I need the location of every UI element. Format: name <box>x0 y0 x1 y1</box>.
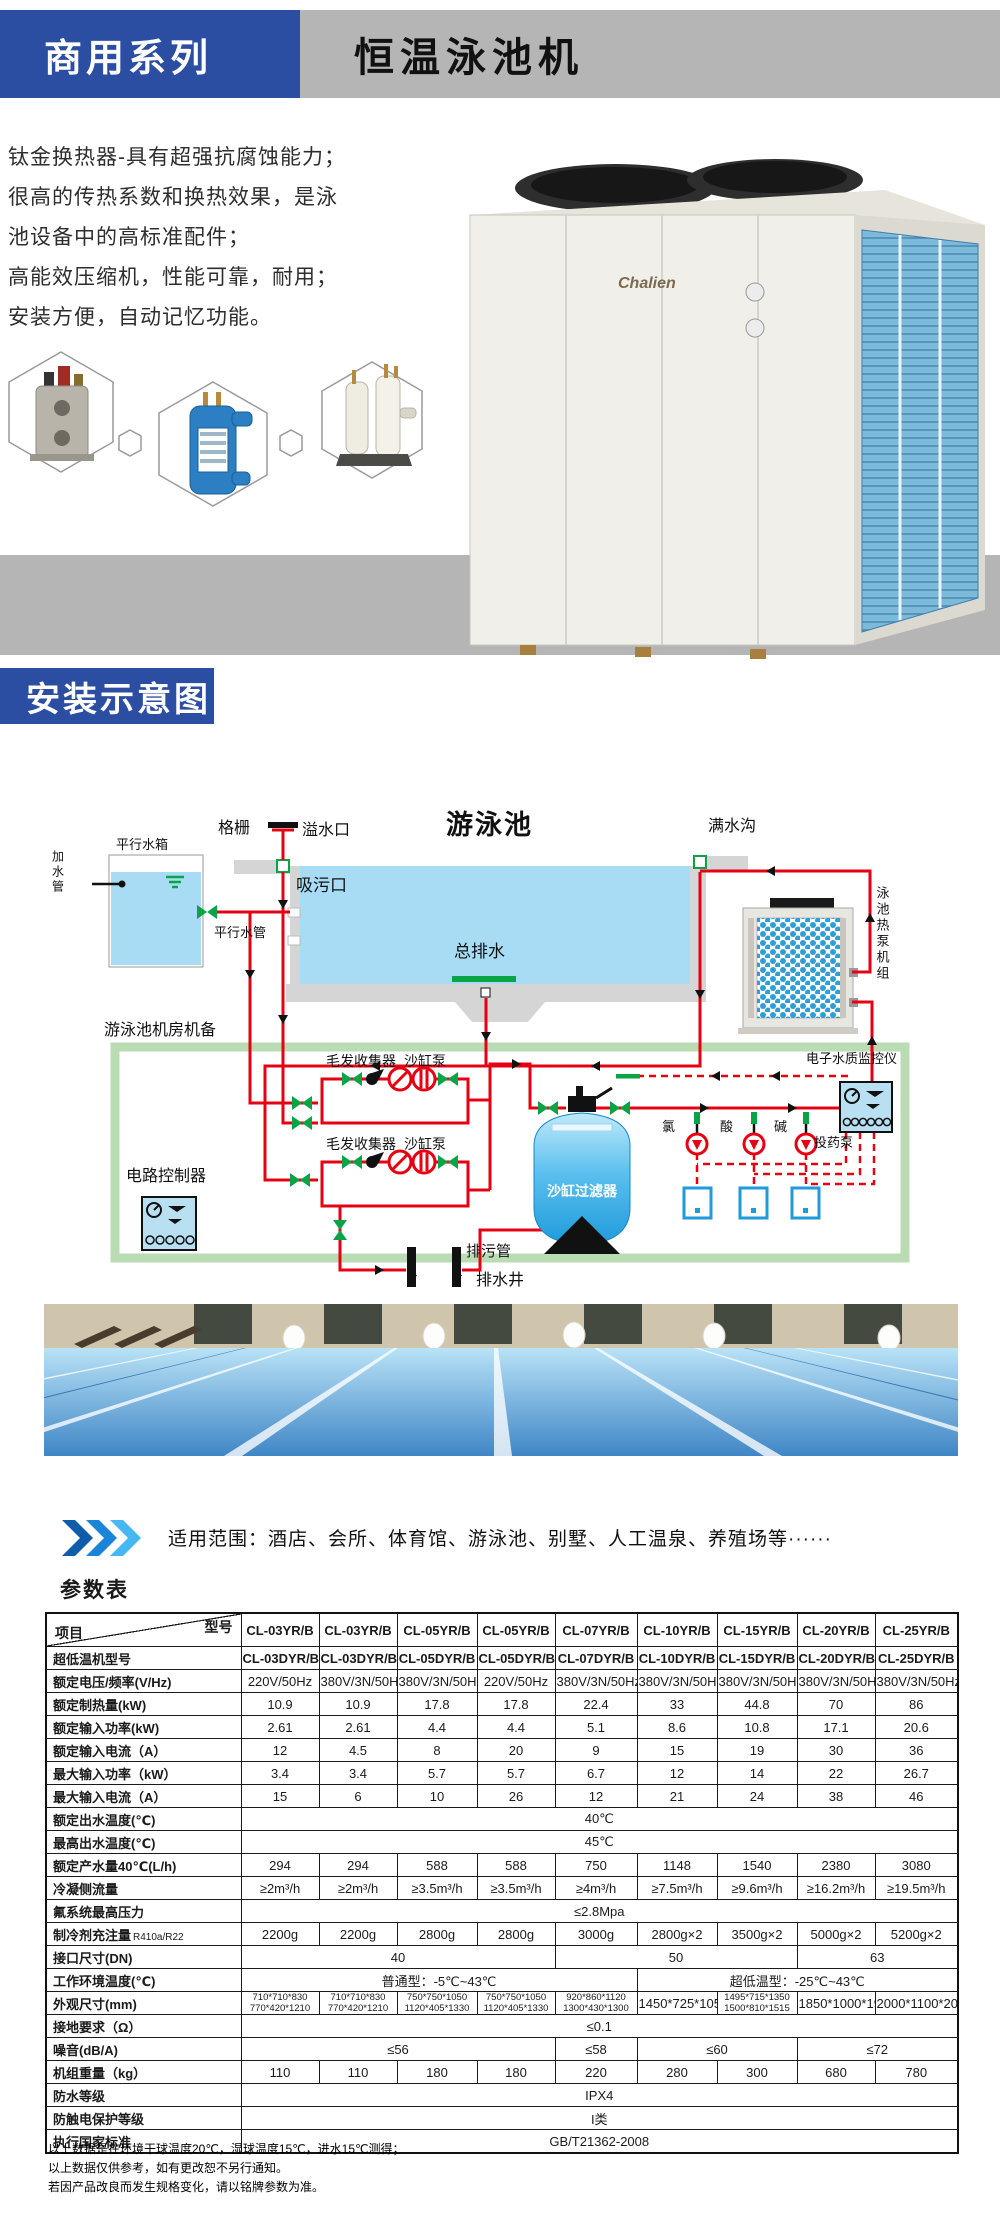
spec-cell: ≤58 <box>555 2038 637 2061</box>
spec-row-label: 额定电压/频率(V/Hz) <box>46 1670 241 1693</box>
spec-cell: ≥3.5m³/h <box>397 1877 477 1900</box>
parallel-tank <box>92 855 203 967</box>
spec-cell: 17.8 <box>397 1693 477 1716</box>
spec-model-cell: CL-20YR/B <box>797 1613 875 1647</box>
spec-cell: 12 <box>555 1785 637 1808</box>
spec-cell: 2800g×2 <box>637 1923 717 1946</box>
spec-cell: 4.4 <box>397 1716 477 1739</box>
spec-cell: ≥2m³/h <box>241 1877 319 1900</box>
spec-row-label: 制冷剂充注量R410a/R22 <box>46 1923 241 1946</box>
product-description: 钛金换热器-具有超强抗腐蚀能力； 很高的传热系数和换热效果，是泳 池设备中的高标… <box>8 138 388 338</box>
spec-cell: 63 <box>797 1946 958 1969</box>
sand-pump-icon <box>413 1068 435 1090</box>
spec-row: 防触电保护等级I类 <box>46 2107 958 2130</box>
spec-cell: 5000g×2 <box>797 1923 875 1946</box>
spec-row-label: 最大输入功率（kW） <box>46 1762 241 1785</box>
specs-title: 参数表 <box>60 1574 129 1604</box>
spec-row-label: 最大输入电流（A） <box>46 1785 241 1808</box>
spec-cell: 3000g <box>555 1923 637 1946</box>
dosing-pipes <box>640 1076 874 1188</box>
spec-cell: 26 <box>477 1785 555 1808</box>
spec-row: 额定电压/频率(V/Hz)220V/50Hz380V/3N/50Hz380V/3… <box>46 1670 958 1693</box>
spec-cell: 588 <box>397 1854 477 1877</box>
brand-logo: Chalien <box>618 275 676 292</box>
spec-model-cell: CL-15YR/B <box>717 1613 797 1647</box>
spec-row: 超低温机型号CL-03DYR/BCL-03DYR/BCL-05DYR/BCL-0… <box>46 1647 958 1670</box>
spec-row: 接口尺寸(DN)405063 <box>46 1946 958 1969</box>
spec-cell: 20.6 <box>875 1716 958 1739</box>
spec-cell: 1148 <box>637 1854 717 1877</box>
spec-row-label: 额定制热量(kW) <box>46 1693 241 1716</box>
spec-model-cell: CL-03YR/B <box>319 1613 397 1647</box>
spec-cell: ≤56 <box>241 2038 555 2061</box>
spec-row: 工作环境温度(℃)普通型：-5℃~43℃超低温型：-25℃~43℃ <box>46 1969 958 1992</box>
spec-cell: 2200g <box>241 1923 319 1946</box>
spec-cell: 44.8 <box>717 1693 797 1716</box>
spec-cell: 750*750*1050 1120*405*1330 <box>477 1992 555 2015</box>
spec-row-label: 额定产水量40℃(L/h) <box>46 1854 241 1877</box>
spec-cell: CL-07DYR/B <box>555 1647 637 1670</box>
spec-cell: 3.4 <box>241 1762 319 1785</box>
page: { "header": { "series_label": "商用系列", "p… <box>0 0 1000 2218</box>
spec-cell: 220V/50Hz <box>241 1670 319 1693</box>
spec-cell: 1495*715*1350 1500*810*1515 <box>717 1992 797 2015</box>
spec-row-label: 防水等级 <box>46 2084 241 2107</box>
spec-cell: 2800g <box>477 1923 555 1946</box>
spec-model-cell: CL-05YR/B <box>397 1613 477 1647</box>
triple-chevron-icon <box>62 1520 162 1556</box>
spec-cell: I类 <box>241 2107 958 2130</box>
install-diagram-title: 安装示意图 <box>0 672 211 721</box>
spec-cell: CL-03DYR/B <box>319 1647 397 1670</box>
label-parallel-pipe: 平行水管 <box>214 926 266 941</box>
spec-cell: 180 <box>397 2061 477 2084</box>
spec-cell: ≤60 <box>637 2038 797 2061</box>
spec-row-label: 额定输入功率(kW) <box>46 1716 241 1739</box>
sand-filter-icon <box>534 1086 630 1254</box>
spec-row: 氟系统最高压力≤2.8Mpa <box>46 1900 958 1923</box>
spec-cell: 6 <box>319 1785 397 1808</box>
footnotes: 以上数据是在环境干球温度20℃，湿球温度15℃，进水15℃测得； 以上数据仅供参… <box>48 2140 404 2197</box>
label-suction: 吸污口 <box>296 876 347 895</box>
installation-diagram: 格栅 溢水口 游泳池 满水沟 平行水箱 加水管 吸污口 平行水管 总排水 泳池热… <box>0 760 1000 1320</box>
spec-cell: ≤72 <box>797 2038 958 2061</box>
label-full-trough: 满水沟 <box>708 818 756 836</box>
spec-cell: ≤0.1 <box>241 2015 958 2038</box>
spec-cell: 12 <box>241 1739 319 1762</box>
spec-cell: 40 <box>241 1946 555 1969</box>
spec-cell: 300 <box>717 2061 797 2084</box>
sand-pump-icon <box>413 1151 435 1173</box>
spec-cell: 3080 <box>875 1854 958 1877</box>
spec-cell: 680 <box>797 2061 875 2084</box>
spec-cell: ≤2.8Mpa <box>241 1900 958 1923</box>
spec-cell: 380V/3N/50Hz <box>717 1670 797 1693</box>
label-acid: 酸 <box>720 1120 733 1135</box>
spec-cell: 22 <box>797 1762 875 1785</box>
spec-cell: 15 <box>241 1785 319 1808</box>
spec-cell: 710*710*830 770*420*1210 <box>319 1992 397 2015</box>
overflow-box <box>277 860 289 872</box>
spec-cell: 24 <box>717 1785 797 1808</box>
spec-row-label: 额定输入电流（A） <box>46 1739 241 1762</box>
spec-cell: 294 <box>319 1854 397 1877</box>
label-machine-room: 游泳池机房机备 <box>104 1022 216 1040</box>
water-monitor-box <box>840 1082 892 1132</box>
spec-cell: 普通型：-5℃~43℃ <box>241 1969 637 1992</box>
spec-row-label: 氟系统最高压力 <box>46 1900 241 1923</box>
spec-row: 额定出水温度(℃)40℃ <box>46 1808 958 1831</box>
spec-cell: 110 <box>241 2061 319 2084</box>
spec-row-label: 冷凝侧流量 <box>46 1877 241 1900</box>
spec-cell: 86 <box>875 1693 958 1716</box>
spec-row: 额定输入功率(kW)2.612.614.44.45.18.610.817.120… <box>46 1716 958 1739</box>
specs-table-wrap: 型号项目CL-03YR/BCL-03YR/BCL-05YR/BCL-05YR/B… <box>45 1612 959 2154</box>
spec-cell: 6.7 <box>555 1762 637 1785</box>
spec-row: 外观尺寸(mm)710*710*830 770*420*1210710*710*… <box>46 1992 958 2015</box>
spec-cell: 50 <box>555 1946 797 1969</box>
label-hair-collector-2: 毛发收集器 <box>326 1137 396 1153</box>
spec-cell: 380V/3N/50Hz <box>397 1670 477 1693</box>
spec-cell: 2800g <box>397 1923 477 1946</box>
label-sand-pump-1: 沙缸泵 <box>404 1054 446 1070</box>
diagonal-bottom-left: 项目 <box>55 1623 83 1643</box>
spec-cell: 20 <box>477 1739 555 1762</box>
spec-cell: 588 <box>477 1854 555 1877</box>
spec-cell: ≥7.5m³/h <box>637 1877 717 1900</box>
spec-row-label: 接口尺寸(DN) <box>46 1946 241 1969</box>
spec-cell: 220 <box>555 2061 637 2084</box>
label-parallel-tank: 平行水箱 <box>116 838 168 853</box>
spec-cell: ≥9.6m³/h <box>717 1877 797 1900</box>
spec-row: 额定输入电流（A）124.5820915193036 <box>46 1739 958 1762</box>
spec-row: 噪音(dB/A)≤56≤58≤60≤72 <box>46 2038 958 2061</box>
spec-row: 冷凝侧流量≥2m³/h≥2m³/h≥3.5m³/h≥3.5m³/h≥4m³/h≥… <box>46 1877 958 1900</box>
heat-pump-unit-icon <box>738 898 858 1034</box>
spec-row-label-text: 制冷剂充注量 <box>53 1928 131 1943</box>
install-diagram-banner: 安装示意图 <box>0 668 214 724</box>
spec-row: 机组重量（kg）110110180180220280300680780 <box>46 2061 958 2084</box>
spec-cell: CL-10DYR/B <box>637 1647 717 1670</box>
label-circuit-controller: 电路控制器 <box>126 1168 206 1186</box>
spec-cell: 5.7 <box>477 1762 555 1785</box>
label-add-water: 加水管 <box>50 850 63 895</box>
spec-cell: 1450*725*1050 <box>637 1992 717 2015</box>
spec-cell: 110 <box>319 2061 397 2084</box>
spec-row: 防水等级IPX4 <box>46 2084 958 2107</box>
spec-cell: 780 <box>875 2061 958 2084</box>
spec-cell: 3500g×2 <box>717 1923 797 1946</box>
spec-cell: 1540 <box>717 1854 797 1877</box>
spec-row-label: 接地要求（Ω） <box>46 2015 241 2038</box>
spec-cell: 26.7 <box>875 1762 958 1785</box>
spec-row: 接地要求（Ω）≤0.1 <box>46 2015 958 2038</box>
spec-cell: 超低温型：-25℃~43℃ <box>637 1969 958 1992</box>
diagonal-header-cell: 型号项目 <box>46 1613 241 1647</box>
spec-cell: 9 <box>555 1739 637 1762</box>
spec-cell: 8 <box>397 1739 477 1762</box>
sand-pump-icon <box>389 1151 411 1173</box>
heat-pump-product-image: Chalien <box>430 130 1000 660</box>
spec-cell: 750 <box>555 1854 637 1877</box>
spec-cell: 70 <box>797 1693 875 1716</box>
spec-cell: 5.7 <box>397 1762 477 1785</box>
spec-row: 额定制热量(kW)10.910.917.817.822.43344.87086 <box>46 1693 958 1716</box>
spec-cell: 17.1 <box>797 1716 875 1739</box>
spec-cell: 2200g <box>319 1923 397 1946</box>
label-chlorine: 氯 <box>662 1120 675 1135</box>
page-title: 恒温泳池机 <box>300 25 584 83</box>
label-water-monitor: 电子水质监控仪 <box>806 1052 897 1067</box>
spec-row: 额定产水量40℃(L/h)294294588588750114815402380… <box>46 1854 958 1877</box>
gauge-icon <box>746 319 764 337</box>
spec-cell: 17.8 <box>477 1693 555 1716</box>
spec-cell: 3.4 <box>319 1762 397 1785</box>
label-sand-pump-2: 沙缸泵 <box>404 1137 446 1153</box>
spec-model-cell: CL-05YR/B <box>477 1613 555 1647</box>
spec-cell: 750*750*1050 1120*405*1330 <box>397 1992 477 2015</box>
spec-model-cell: CL-10YR/B <box>637 1613 717 1647</box>
spec-cell: CL-03DYR/B <box>241 1647 319 1670</box>
spec-cell: 5.1 <box>555 1716 637 1739</box>
spec-cell: 180 <box>477 2061 555 2084</box>
spec-cell: 4.4 <box>477 1716 555 1739</box>
label-sewage-pipe: 排污管 <box>466 1244 511 1261</box>
product-title-bar: 恒温泳池机 <box>300 10 1000 98</box>
heat-exchanger-images <box>0 350 440 515</box>
spec-cell: 380V/3N/50Hz <box>875 1670 958 1693</box>
spec-cell: 30 <box>797 1739 875 1762</box>
spec-cell: 8.6 <box>637 1716 717 1739</box>
label-drain-well: 排水井 <box>476 1272 524 1290</box>
spec-cell: ≥2m³/h <box>319 1877 397 1900</box>
spec-cell: CL-05DYR/B <box>397 1647 477 1670</box>
spec-header-row: 型号项目CL-03YR/BCL-03YR/BCL-05YR/BCL-05YR/B… <box>46 1613 958 1647</box>
spec-cell: 38 <box>797 1785 875 1808</box>
series-banner: 商用系列 <box>0 10 300 98</box>
spec-cell: 36 <box>875 1739 958 1762</box>
spec-cell: 46 <box>875 1785 958 1808</box>
spec-cell: ≥4m³/h <box>555 1877 637 1900</box>
spec-cell: 380V/3N/50Hz <box>797 1670 875 1693</box>
series-label: 商用系列 <box>0 27 212 82</box>
spec-row-label: 机组重量（kg） <box>46 2061 241 2084</box>
evaporator-coil <box>862 230 978 632</box>
spec-cell: 14 <box>717 1762 797 1785</box>
spec-cell: CL-15DYR/B <box>717 1647 797 1670</box>
spec-cell: 10.9 <box>241 1693 319 1716</box>
spec-cell: 920*860*1120 1300*430*1300 <box>555 1992 637 2015</box>
spec-cell: 294 <box>241 1854 319 1877</box>
spec-cell: 5200g×2 <box>875 1923 958 1946</box>
spec-row: 制冷剂充注量R410a/R222200g2200g2800g2800g3000g… <box>46 1923 958 1946</box>
diagonal-top-right: 型号 <box>205 1617 233 1637</box>
spec-cell: 10.9 <box>319 1693 397 1716</box>
label-alkali: 碱 <box>774 1120 787 1135</box>
spec-cell: 15 <box>637 1739 717 1762</box>
gauge-icon <box>746 283 764 301</box>
spec-cell: CL-05DYR/B <box>477 1647 555 1670</box>
spec-cell: 2.61 <box>319 1716 397 1739</box>
circuit-controller-box <box>142 1197 196 1250</box>
spec-row-label: 外观尺寸(mm) <box>46 1992 241 2015</box>
spec-model-cell: CL-25YR/B <box>875 1613 958 1647</box>
spec-cell: 2380 <box>797 1854 875 1877</box>
spec-cell: ≥3.5m³/h <box>477 1877 555 1900</box>
label-main-drain: 总排水 <box>454 942 505 961</box>
spec-cell: 2.61 <box>241 1716 319 1739</box>
specs-table: 型号项目CL-03YR/BCL-03YR/BCL-05YR/BCL-05YR/B… <box>45 1612 959 2154</box>
spec-cell: ≥19.5m³/h <box>875 1877 958 1900</box>
trough-box <box>694 856 706 868</box>
spec-row-label: 防触电保护等级 <box>46 2107 241 2130</box>
spec-row-label: 超低温机型号 <box>46 1647 241 1670</box>
spec-row-label: 最高出水温度(℃) <box>46 1831 241 1854</box>
pool-photo <box>44 1304 958 1456</box>
label-heat-pump-unit: 泳池热泵机组 <box>874 886 889 982</box>
label-overflow: 溢水口 <box>302 822 350 840</box>
spec-cell: 2000*1100*2080 <box>875 1992 958 2015</box>
spec-cell: 10 <box>397 1785 477 1808</box>
label-pool: 游泳池 <box>446 810 533 840</box>
spec-row-label: 额定出水温度(℃) <box>46 1808 241 1831</box>
label-grille: 格栅 <box>218 820 250 838</box>
spec-cell: 380V/3N/50Hz <box>555 1670 637 1693</box>
spec-cell: 12 <box>637 1762 717 1785</box>
spec-cell: 4.5 <box>319 1739 397 1762</box>
spec-model-cell: CL-03YR/B <box>241 1613 319 1647</box>
sand-pump-icon <box>389 1068 411 1090</box>
chemical-tank-icons <box>684 1188 819 1218</box>
spec-cell: CL-25DYR/B <box>875 1647 958 1670</box>
spec-cell: CL-20DYR/B <box>797 1647 875 1670</box>
spec-cell: 220V/50Hz <box>477 1670 555 1693</box>
spec-cell: 380V/3N/50Hz <box>319 1670 397 1693</box>
spec-cell: 33 <box>637 1693 717 1716</box>
spec-row-label: 工作环境温度(℃) <box>46 1969 241 1992</box>
spec-cell: 280 <box>637 2061 717 2084</box>
label-sand-filter: 沙缸过滤器 <box>547 1184 617 1200</box>
spec-row: 最大输入功率（kW）3.43.45.75.76.712142226.7 <box>46 1762 958 1785</box>
spec-cell: 1850*1000*1950 <box>797 1992 875 2015</box>
spec-cell: 21 <box>637 1785 717 1808</box>
spec-cell: 45℃ <box>241 1831 958 1854</box>
spec-cell: 22.4 <box>555 1693 637 1716</box>
spec-cell: 10.8 <box>717 1716 797 1739</box>
spec-row: 最大输入电流（A）15610261221243846 <box>46 1785 958 1808</box>
spec-cell: 710*710*830 770*420*1210 <box>241 1992 319 2015</box>
scope-text: 适用范围：酒店、会所、体育馆、游泳池、别墅、人工温泉、养殖场等······ <box>168 1524 832 1551</box>
spec-cell: ≥16.2m³/h <box>797 1877 875 1900</box>
spec-cell: 380V/3N/50Hz <box>637 1670 717 1693</box>
spec-cell: IPX4 <box>241 2084 958 2107</box>
spec-model-cell: CL-07YR/B <box>555 1613 637 1647</box>
label-hair-collector-1: 毛发收集器 <box>326 1054 396 1070</box>
spec-row-label: 噪音(dB/A) <box>46 2038 241 2061</box>
hair-collector-icons <box>366 1069 384 1168</box>
spec-cell: 40℃ <box>241 1808 958 1831</box>
label-dosing-pump: 投药泵 <box>814 1136 853 1151</box>
machine-room-outline <box>115 1047 905 1258</box>
dosing-pump-icons <box>687 1112 816 1154</box>
spec-cell: 19 <box>717 1739 797 1762</box>
spec-row: 最高出水温度(℃)45℃ <box>46 1831 958 1854</box>
spec-row-label-sub: R410a/R22 <box>133 1932 184 1943</box>
grille-bar <box>268 822 298 828</box>
